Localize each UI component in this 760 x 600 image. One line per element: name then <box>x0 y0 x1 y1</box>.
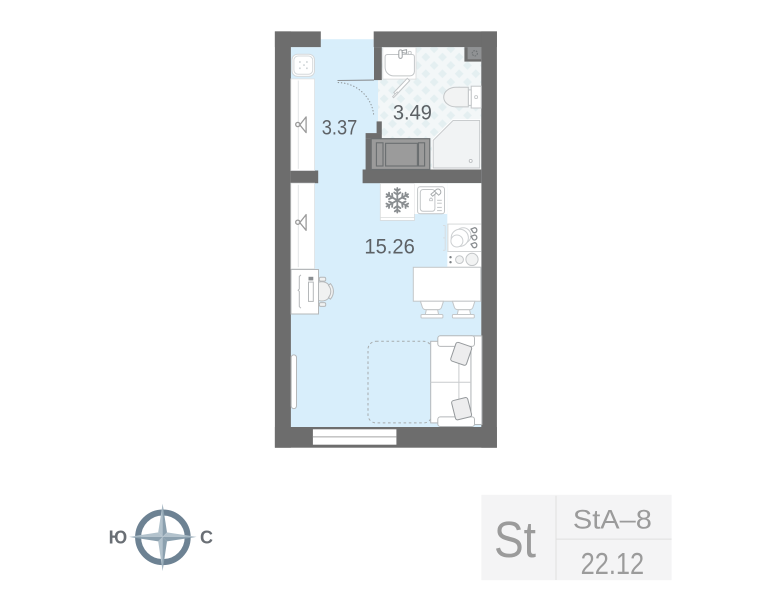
svg-text:3.49: 3.49 <box>393 101 432 125</box>
svg-text:Ю: Ю <box>109 528 128 548</box>
svg-text:StA–8: StA–8 <box>573 504 652 534</box>
svg-text:15.26: 15.26 <box>364 235 415 259</box>
svg-text:3.37: 3.37 <box>322 116 358 140</box>
svg-text:22.12: 22.12 <box>581 546 645 581</box>
svg-text:St: St <box>494 511 536 568</box>
svg-text:С: С <box>200 528 213 548</box>
